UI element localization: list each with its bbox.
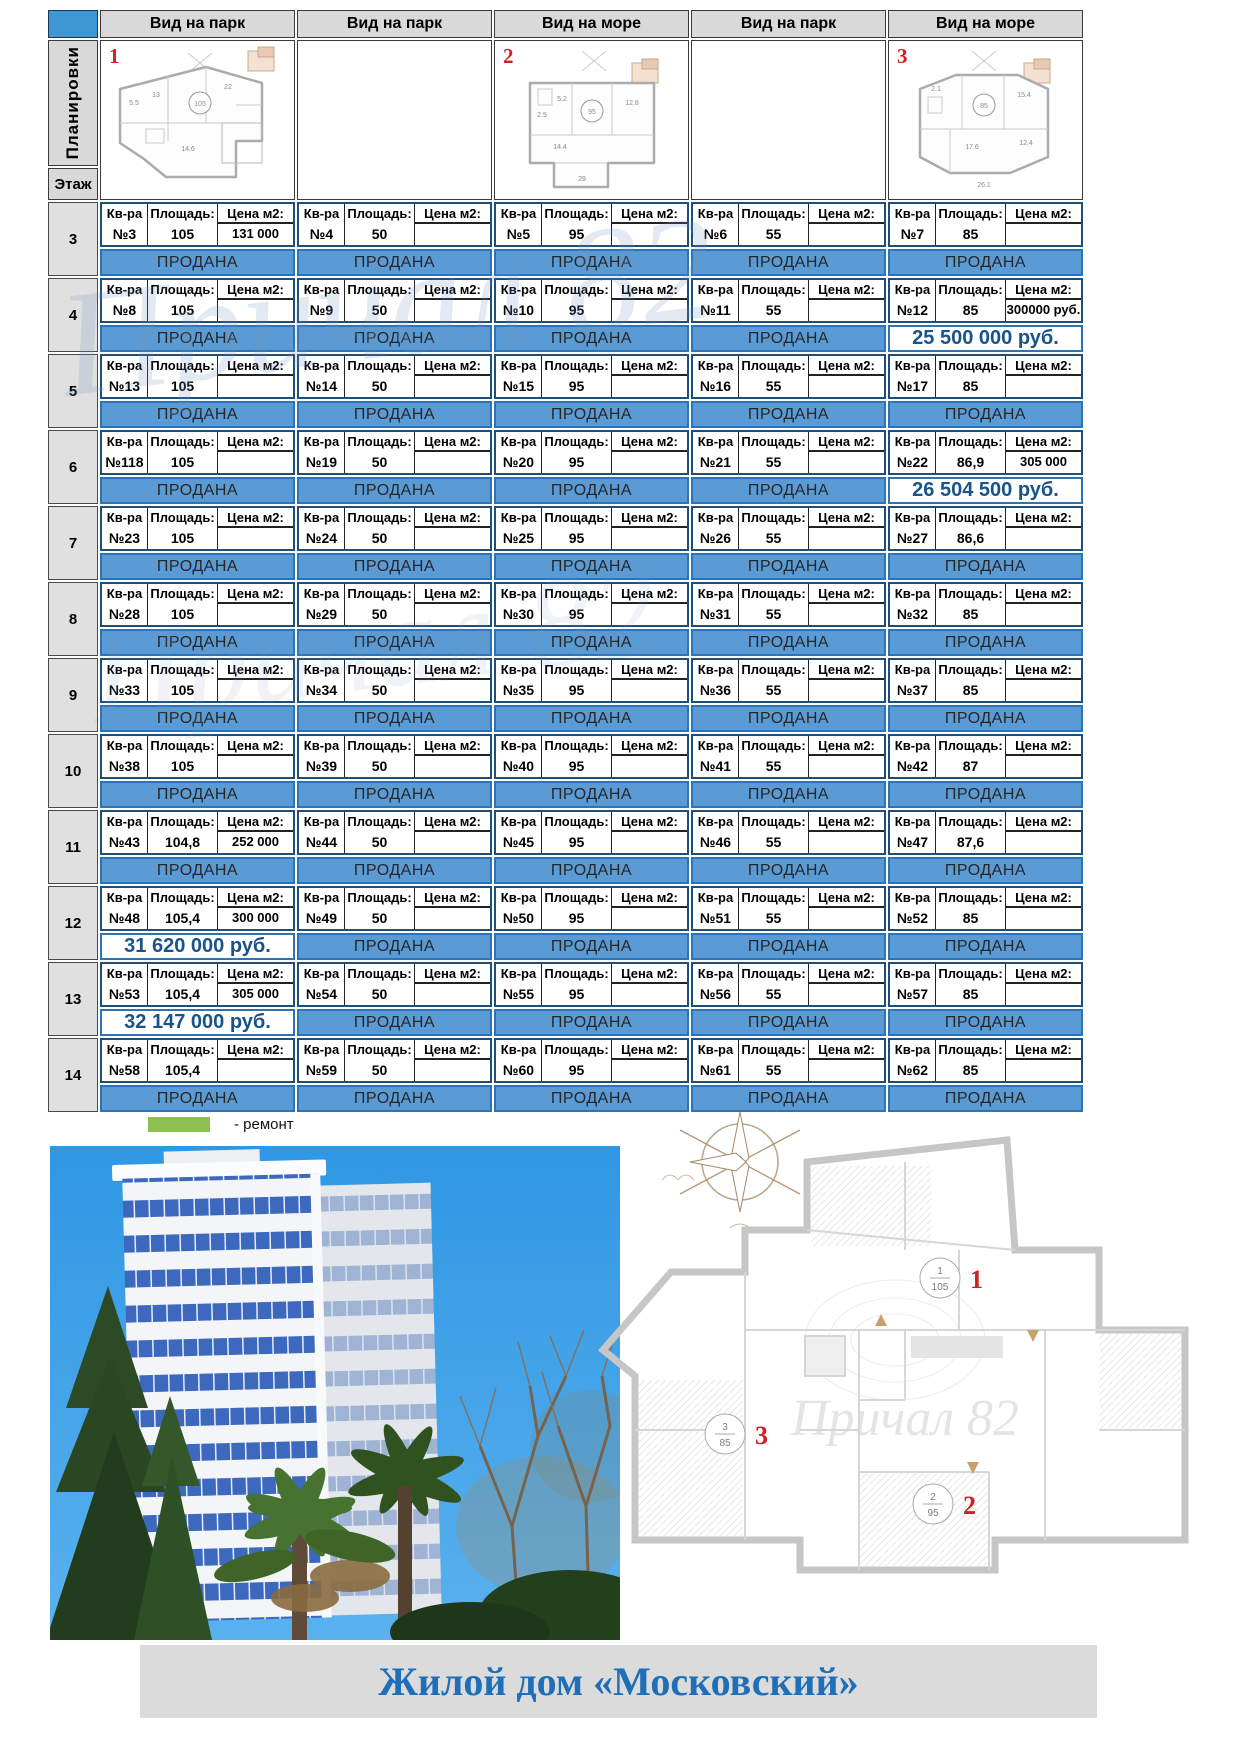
- apartment-info: Кв-ра№3Площадь:105Цена м2:131 000: [100, 202, 295, 247]
- apt-column: Кв-ра№20: [496, 432, 542, 473]
- apartment-number: №29: [299, 604, 344, 625]
- price-m2-value: [415, 224, 490, 245]
- apartment-info: Кв-ра№28Площадь:105Цена м2:: [100, 582, 295, 627]
- status-sold-bar: ПРОДАНА: [494, 477, 689, 504]
- apartment-number: №27: [890, 528, 935, 549]
- area-value: 50: [345, 680, 414, 701]
- apt-column: Кв-ра№42: [890, 736, 936, 777]
- status-price: 31 620 000 руб.: [100, 933, 295, 960]
- price-label: Цена м2:: [612, 280, 687, 300]
- area-column: Площадь:50: [345, 812, 415, 853]
- area-column: Площадь:95: [542, 660, 612, 701]
- price-column: Цена м2:: [612, 812, 687, 853]
- apartment-info: Кв-ра№23Площадь:105Цена м2:: [100, 506, 295, 551]
- floor-row: 3Кв-ра№3Площадь:105Цена м2:131 000ПРОДАН…: [48, 202, 1085, 276]
- apt-column: Кв-ра№15: [496, 356, 542, 397]
- apartment-info: Кв-ра№61Площадь:55Цена м2:: [691, 1038, 886, 1083]
- price-label: Цена м2:: [218, 964, 293, 984]
- price-label: Цена м2:: [612, 508, 687, 528]
- area-value: 104,8: [148, 832, 217, 853]
- price-column: Цена м2:: [218, 584, 293, 625]
- area-value: 55: [739, 224, 808, 245]
- apartment-marker-1: 1 105 1: [920, 1258, 983, 1298]
- area-label: Площадь:: [345, 660, 414, 680]
- price-label: Цена м2:: [218, 204, 293, 224]
- apartment-number: №24: [299, 528, 344, 549]
- area-label: Площадь:: [739, 432, 808, 452]
- area-column: Площадь:50: [345, 660, 415, 701]
- svg-text:2: 2: [963, 1491, 976, 1520]
- apartment-cell: Кв-ра№36Площадь:55Цена м2:ПРОДАНА: [691, 658, 886, 732]
- price-m2-value: 131 000: [218, 224, 293, 245]
- area-column: Площадь:50: [345, 736, 415, 777]
- apt-column: Кв-ра№57: [890, 964, 936, 1005]
- price-m2-value: [809, 604, 884, 625]
- apt-column: Кв-ра№51: [693, 888, 739, 929]
- apt-column: Кв-ра№30: [496, 584, 542, 625]
- status-sold-bar: ПРОДАНА: [297, 781, 492, 808]
- price-table: Причал 82 Причал 82 Вид на парк Вид на п…: [48, 10, 1085, 1114]
- apartment-info: Кв-ра№47Площадь:87,6Цена м2:: [888, 810, 1083, 855]
- svg-text:15.4: 15.4: [1017, 92, 1031, 99]
- apartment-cell: Кв-ра№6Площадь:55Цена м2:ПРОДАНА: [691, 202, 886, 276]
- svg-text:2.5: 2.5: [537, 112, 547, 119]
- area-label: Площадь:: [936, 888, 1005, 908]
- price-m2-value: [218, 528, 293, 549]
- area-column: Площадь:95: [542, 736, 612, 777]
- svg-text:17.6: 17.6: [965, 144, 979, 151]
- price-column: Цена м2:: [809, 964, 884, 1005]
- apartment-number: №62: [890, 1060, 935, 1081]
- apartment-cell: Кв-ра№16Площадь:55Цена м2:ПРОДАНА: [691, 354, 886, 428]
- price-m2-value: [1006, 376, 1081, 397]
- svg-text:5.5: 5.5: [129, 100, 139, 107]
- apartment-info: Кв-ра№9Площадь:50Цена м2:: [297, 278, 492, 323]
- apt-label: Кв-ра: [102, 1040, 147, 1060]
- price-label: Цена м2:: [612, 584, 687, 604]
- plan-cell-empty-1: [297, 40, 492, 200]
- area-label: Площадь:: [345, 736, 414, 756]
- area-value: 85: [936, 680, 1005, 701]
- floor-row: 11Кв-ра№43Площадь:104,8Цена м2:252 000ПР…: [48, 810, 1085, 884]
- price-m2-value: [809, 756, 884, 777]
- apartment-number: №52: [890, 908, 935, 929]
- price-label: Цена м2:: [612, 1040, 687, 1060]
- apartment-info: Кв-ра№51Площадь:55Цена м2:: [691, 886, 886, 931]
- apartment-info: Кв-ра№60Площадь:95Цена м2:: [494, 1038, 689, 1083]
- apartment-info: Кв-ра№30Площадь:95Цена м2:: [494, 582, 689, 627]
- apt-column: Кв-ра№56: [693, 964, 739, 1005]
- area-value: 105,4: [148, 908, 217, 929]
- apt-column: Кв-ра№44: [299, 812, 345, 853]
- status-sold-bar: ПРОДАНА: [100, 325, 295, 352]
- price-column: Цена м2:: [809, 1040, 884, 1081]
- area-label: Площадь:: [345, 964, 414, 984]
- floor-number: 3: [48, 202, 98, 276]
- svg-text:2: 2: [930, 1492, 936, 1503]
- area-column: Площадь:85: [936, 888, 1006, 929]
- area-label: Площадь:: [148, 660, 217, 680]
- apartment-number: №7: [890, 224, 935, 245]
- apt-label: Кв-ра: [299, 964, 344, 984]
- area-value: 105: [148, 376, 217, 397]
- apt-column: Кв-ра№58: [102, 1040, 148, 1081]
- apt-label: Кв-ра: [496, 888, 541, 908]
- apt-label: Кв-ра: [693, 964, 738, 984]
- price-label: Цена м2:: [809, 1040, 884, 1060]
- area-label: Площадь:: [542, 432, 611, 452]
- corner-cell: [48, 10, 98, 38]
- price-label: Цена м2:: [612, 812, 687, 832]
- price-column: Цена м2:: [612, 204, 687, 245]
- apartment-number: №26: [693, 528, 738, 549]
- price-label: Цена м2:: [218, 888, 293, 908]
- apartment-info: Кв-ра№17Площадь:85Цена м2:: [888, 354, 1083, 399]
- apartment-number: №5: [496, 224, 541, 245]
- svg-text:105: 105: [932, 1282, 949, 1293]
- apt-column: Кв-ра№28: [102, 584, 148, 625]
- status-sold-bar: ПРОДАНА: [888, 553, 1083, 580]
- apt-column: Кв-ра№7: [890, 204, 936, 245]
- apartment-number: №56: [693, 984, 738, 1005]
- area-value: 55: [739, 908, 808, 929]
- area-column: Площадь:85: [936, 356, 1006, 397]
- apartment-info: Кв-ра№54Площадь:50Цена м2:: [297, 962, 492, 1007]
- apartment-cell: Кв-ра№13Площадь:105Цена м2:ПРОДАНА: [100, 354, 295, 428]
- apartment-number: №4: [299, 224, 344, 245]
- area-value: 55: [739, 300, 808, 321]
- svg-text:1: 1: [970, 1265, 983, 1294]
- legend-label: - ремонт: [234, 1116, 294, 1133]
- status-sold-bar: ПРОДАНА: [888, 249, 1083, 276]
- area-value: 55: [739, 604, 808, 625]
- apartment-cell: Кв-ра№58Площадь:105,4Цена м2:ПРОДАНА: [100, 1038, 295, 1112]
- area-column: Площадь:105,4: [148, 888, 218, 929]
- apt-column: Кв-ра№60: [496, 1040, 542, 1081]
- apt-column: Кв-ра№26: [693, 508, 739, 549]
- apt-column: Кв-ра№4: [299, 204, 345, 245]
- svg-text:14.4: 14.4: [553, 144, 567, 151]
- apartment-cell: Кв-ра№32Площадь:85Цена м2:ПРОДАНА: [888, 582, 1083, 656]
- area-value: 95: [542, 756, 611, 777]
- apt-label: Кв-ра: [496, 584, 541, 604]
- area-label: Площадь:: [739, 964, 808, 984]
- apartment-number: №118: [102, 452, 147, 473]
- price-column: Цена м2:: [1006, 204, 1081, 245]
- area-value: 95: [542, 984, 611, 1005]
- price-label: Цена м2:: [809, 888, 884, 908]
- plan-thumbnail-cell-3: 3 85: [888, 40, 1083, 200]
- area-column: Площадь:85: [936, 584, 1006, 625]
- area-value: 95: [542, 452, 611, 473]
- area-label: Площадь:: [542, 356, 611, 376]
- apartment-cell: Кв-ра№57Площадь:85Цена м2:ПРОДАНА: [888, 962, 1083, 1036]
- price-label: Цена м2:: [1006, 432, 1081, 452]
- area-label: Площадь:: [739, 888, 808, 908]
- apartment-number: №15: [496, 376, 541, 397]
- apartment-info: Кв-ра№50Площадь:95Цена м2:: [494, 886, 689, 931]
- price-column: Цена м2:252 000: [218, 812, 293, 853]
- area-label: Площадь:: [542, 204, 611, 224]
- apt-label: Кв-ра: [102, 660, 147, 680]
- price-column: Цена м2:: [1006, 888, 1081, 929]
- price-m2-value: [218, 376, 293, 397]
- area-column: Площадь:95: [542, 356, 612, 397]
- apartment-info: Кв-ра№44Площадь:50Цена м2:: [297, 810, 492, 855]
- apt-label: Кв-ра: [299, 280, 344, 300]
- apt-label: Кв-ра: [890, 888, 935, 908]
- apt-label: Кв-ра: [693, 356, 738, 376]
- floor-row: 10Кв-ра№38Площадь:105Цена м2:ПРОДАНАКв-р…: [48, 734, 1085, 808]
- price-label: Цена м2:: [415, 812, 490, 832]
- price-label: Цена м2:: [612, 736, 687, 756]
- apt-label: Кв-ра: [693, 1040, 738, 1060]
- area-column: Площадь:55: [739, 964, 809, 1005]
- area-column: Площадь:104,8: [148, 812, 218, 853]
- area-value: 105: [148, 452, 217, 473]
- price-m2-value: [1006, 224, 1081, 245]
- apartment-number: №55: [496, 984, 541, 1005]
- status-sold-bar: ПРОДАНА: [297, 629, 492, 656]
- apt-label: Кв-ра: [890, 964, 935, 984]
- area-label: Площадь:: [739, 204, 808, 224]
- price-column: Цена м2:: [1006, 812, 1081, 853]
- apt-label: Кв-ра: [693, 508, 738, 528]
- price-column: Цена м2:: [415, 1040, 490, 1081]
- price-label: Цена м2:: [415, 204, 490, 224]
- price-label: Цена м2:: [1006, 964, 1081, 984]
- status-sold-bar: ПРОДАНА: [888, 401, 1083, 428]
- apartment-cell: Кв-ра№45Площадь:95Цена м2:ПРОДАНА: [494, 810, 689, 884]
- price-label: Цена м2:: [218, 432, 293, 452]
- area-column: Площадь:50: [345, 888, 415, 929]
- price-label: Цена м2:: [809, 432, 884, 452]
- area-column: Площадь:95: [542, 508, 612, 549]
- area-value: 55: [739, 376, 808, 397]
- price-m2-value: [809, 376, 884, 397]
- floor-number: 5: [48, 354, 98, 428]
- apt-column: Кв-ра№19: [299, 432, 345, 473]
- title-banner: Жилой дом «Московский»: [140, 1645, 1097, 1718]
- area-label: Площадь:: [148, 812, 217, 832]
- price-m2-value: [218, 604, 293, 625]
- apartment-number: №57: [890, 984, 935, 1005]
- status-sold-bar: ПРОДАНА: [297, 477, 492, 504]
- price-label: Цена м2:: [1006, 660, 1081, 680]
- price-label: Цена м2:: [218, 280, 293, 300]
- svg-text:1: 1: [937, 1266, 943, 1277]
- price-label: Цена м2:: [218, 812, 293, 832]
- apartment-info: Кв-ра№41Площадь:55Цена м2:: [691, 734, 886, 779]
- price-label: Цена м2:: [809, 660, 884, 680]
- column-header-3: Вид на море: [494, 10, 689, 38]
- area-value: 50: [345, 224, 414, 245]
- area-column: Площадь:95: [542, 584, 612, 625]
- apartment-number: №8: [102, 300, 147, 321]
- plans-label: Планировки: [63, 46, 83, 159]
- apt-label: Кв-ра: [299, 432, 344, 452]
- apartment-number: №23: [102, 528, 147, 549]
- price-column: Цена м2:: [415, 356, 490, 397]
- area-column: Площадь:85: [936, 660, 1006, 701]
- area-value: 95: [542, 832, 611, 853]
- area-column: Площадь:55: [739, 1040, 809, 1081]
- svg-text:5.2: 5.2: [557, 96, 567, 103]
- apartment-number: №31: [693, 604, 738, 625]
- area-column: Площадь:105: [148, 660, 218, 701]
- apt-label: Кв-ра: [299, 660, 344, 680]
- apt-column: Кв-ра№27: [890, 508, 936, 549]
- price-label: Цена м2:: [415, 1040, 490, 1060]
- apartment-info: Кв-ра№37Площадь:85Цена м2:: [888, 658, 1083, 703]
- apt-label: Кв-ра: [102, 736, 147, 756]
- apartment-info: Кв-ра№29Площадь:50Цена м2:: [297, 582, 492, 627]
- apt-label: Кв-ра: [102, 432, 147, 452]
- apartment-number: №17: [890, 376, 935, 397]
- apartment-cell: Кв-ра№46Площадь:55Цена м2:ПРОДАНА: [691, 810, 886, 884]
- apartment-info: Кв-ра№36Площадь:55Цена м2:: [691, 658, 886, 703]
- status-sold-bar: ПРОДАНА: [100, 781, 295, 808]
- apartment-number: №60: [496, 1060, 541, 1081]
- apt-label: Кв-ра: [496, 432, 541, 452]
- area-column: Площадь:55: [739, 204, 809, 245]
- apartment-number: №54: [299, 984, 344, 1005]
- price-m2-value: [612, 908, 687, 929]
- area-column: Площадь:105,4: [148, 1040, 218, 1081]
- price-column: Цена м2:300 000: [218, 888, 293, 929]
- price-label: Цена м2:: [218, 356, 293, 376]
- area-column: Площадь:55: [739, 508, 809, 549]
- area-column: Площадь:50: [345, 204, 415, 245]
- apartment-number: №58: [102, 1060, 147, 1081]
- price-label: Цена м2:: [415, 660, 490, 680]
- price-column: Цена м2:: [218, 280, 293, 321]
- area-value: 95: [542, 604, 611, 625]
- apartment-info: Кв-ра№56Площадь:55Цена м2:: [691, 962, 886, 1007]
- apt-column: Кв-ра№36: [693, 660, 739, 701]
- price-label: Цена м2:: [612, 888, 687, 908]
- price-label: Цена м2:: [218, 736, 293, 756]
- price-m2-value: [218, 300, 293, 321]
- apt-column: Кв-ра№31: [693, 584, 739, 625]
- price-column: Цена м2:: [415, 660, 490, 701]
- svg-text:2.1: 2.1: [931, 86, 941, 93]
- price-column: Цена м2:: [1006, 964, 1081, 1005]
- apt-column: Кв-ра№14: [299, 356, 345, 397]
- price-column: Цена м2:: [1006, 1040, 1081, 1081]
- price-column: Цена м2:: [809, 508, 884, 549]
- page-title: Жилой дом «Московский»: [378, 1658, 858, 1705]
- area-column: Площадь:50: [345, 508, 415, 549]
- area-value: 55: [739, 984, 808, 1005]
- apt-column: Кв-ра№17: [890, 356, 936, 397]
- apartment-cell: Кв-ра№27Площадь:86,6Цена м2:ПРОДАНА: [888, 506, 1083, 580]
- price-label: Цена м2:: [809, 280, 884, 300]
- price-label: Цена м2:: [612, 432, 687, 452]
- apt-label: Кв-ра: [299, 584, 344, 604]
- apartment-number: №51: [693, 908, 738, 929]
- floor-row: 9Кв-ра№33Площадь:105Цена м2:ПРОДАНАКв-ра…: [48, 658, 1085, 732]
- apartment-number: №36: [693, 680, 738, 701]
- area-value: 105: [148, 756, 217, 777]
- area-column: Площадь:105: [148, 356, 218, 397]
- plan-marker-3: 3: [897, 44, 908, 69]
- status-sold-bar: ПРОДАНА: [100, 401, 295, 428]
- apartment-info: Кв-ра№49Площадь:50Цена м2:: [297, 886, 492, 931]
- price-column: Цена м2:: [415, 280, 490, 321]
- apt-label: Кв-ра: [299, 888, 344, 908]
- apartment-number: №34: [299, 680, 344, 701]
- area-label: Площадь:: [148, 432, 217, 452]
- apartment-info: Кв-ра№42Площадь:87Цена м2:: [888, 734, 1083, 779]
- svg-text:95: 95: [927, 1508, 939, 1519]
- apt-column: Кв-ра№24: [299, 508, 345, 549]
- apartment-info: Кв-ра№34Площадь:50Цена м2:: [297, 658, 492, 703]
- area-value: 95: [542, 528, 611, 549]
- status-sold-bar: ПРОДАНА: [297, 249, 492, 276]
- area-label: Площадь:: [936, 432, 1005, 452]
- price-m2-value: [415, 832, 490, 853]
- apartment-number: №33: [102, 680, 147, 701]
- building-photo: [50, 1146, 620, 1640]
- apartment-info: Кв-ра№39Площадь:50Цена м2:: [297, 734, 492, 779]
- price-label: Цена м2:: [415, 964, 490, 984]
- apartment-cell: Кв-ра№54Площадь:50Цена м2:ПРОДАНА: [297, 962, 492, 1036]
- apartment-cell: Кв-ра№43Площадь:104,8Цена м2:252 000ПРОД…: [100, 810, 295, 884]
- svg-text:3: 3: [722, 1422, 728, 1433]
- apt-column: Кв-ра№54: [299, 964, 345, 1005]
- price-column: Цена м2:305 000: [218, 964, 293, 1005]
- apt-label: Кв-ра: [693, 204, 738, 224]
- price-column: Цена м2:: [218, 736, 293, 777]
- apt-column: Кв-ра№16: [693, 356, 739, 397]
- apartment-info: Кв-ра№14Площадь:50Цена м2:: [297, 354, 492, 399]
- area-label: Площадь:: [148, 508, 217, 528]
- price-column: Цена м2:: [415, 432, 490, 473]
- area-column: Площадь:105: [148, 736, 218, 777]
- apartment-number: №22: [890, 452, 935, 473]
- price-label: Цена м2:: [809, 584, 884, 604]
- area-value: 86,9: [936, 452, 1005, 473]
- status-sold-bar: ПРОДАНА: [494, 325, 689, 352]
- price-label: Цена м2:: [1006, 508, 1081, 528]
- price-column: Цена м2:131 000: [218, 204, 293, 245]
- plan-marker-2: 2: [503, 44, 514, 69]
- area-column: Площадь:105,4: [148, 964, 218, 1005]
- area-label: Площадь:: [542, 812, 611, 832]
- price-label: Цена м2:: [415, 888, 490, 908]
- price-m2-value: [1006, 756, 1081, 777]
- apartment-number: №41: [693, 756, 738, 777]
- area-label: Площадь:: [936, 736, 1005, 756]
- status-sold-bar: ПРОДАНА: [494, 553, 689, 580]
- apartment-cell: Кв-ра№15Площадь:95Цена м2:ПРОДАНА: [494, 354, 689, 428]
- apartment-cell: Кв-ра№52Площадь:85Цена м2:ПРОДАНА: [888, 886, 1083, 960]
- price-m2-value: 305 000: [1006, 452, 1081, 473]
- price-m2-value: 300000 руб.: [1006, 300, 1081, 321]
- price-m2-value: [415, 680, 490, 701]
- price-m2-value: [218, 452, 293, 473]
- price-column: Цена м2:: [612, 508, 687, 549]
- apartment-cell: Кв-ра№55Площадь:95Цена м2:ПРОДАНА: [494, 962, 689, 1036]
- svg-text:22: 22: [224, 84, 232, 91]
- area-value: 85: [936, 908, 1005, 929]
- status-sold-bar: ПРОДАНА: [297, 1085, 492, 1112]
- apt-column: Кв-ра№52: [890, 888, 936, 929]
- apartment-number: №38: [102, 756, 147, 777]
- price-label: Цена м2:: [1006, 584, 1081, 604]
- apartment-cell: Кв-ра№44Площадь:50Цена м2:ПРОДАНА: [297, 810, 492, 884]
